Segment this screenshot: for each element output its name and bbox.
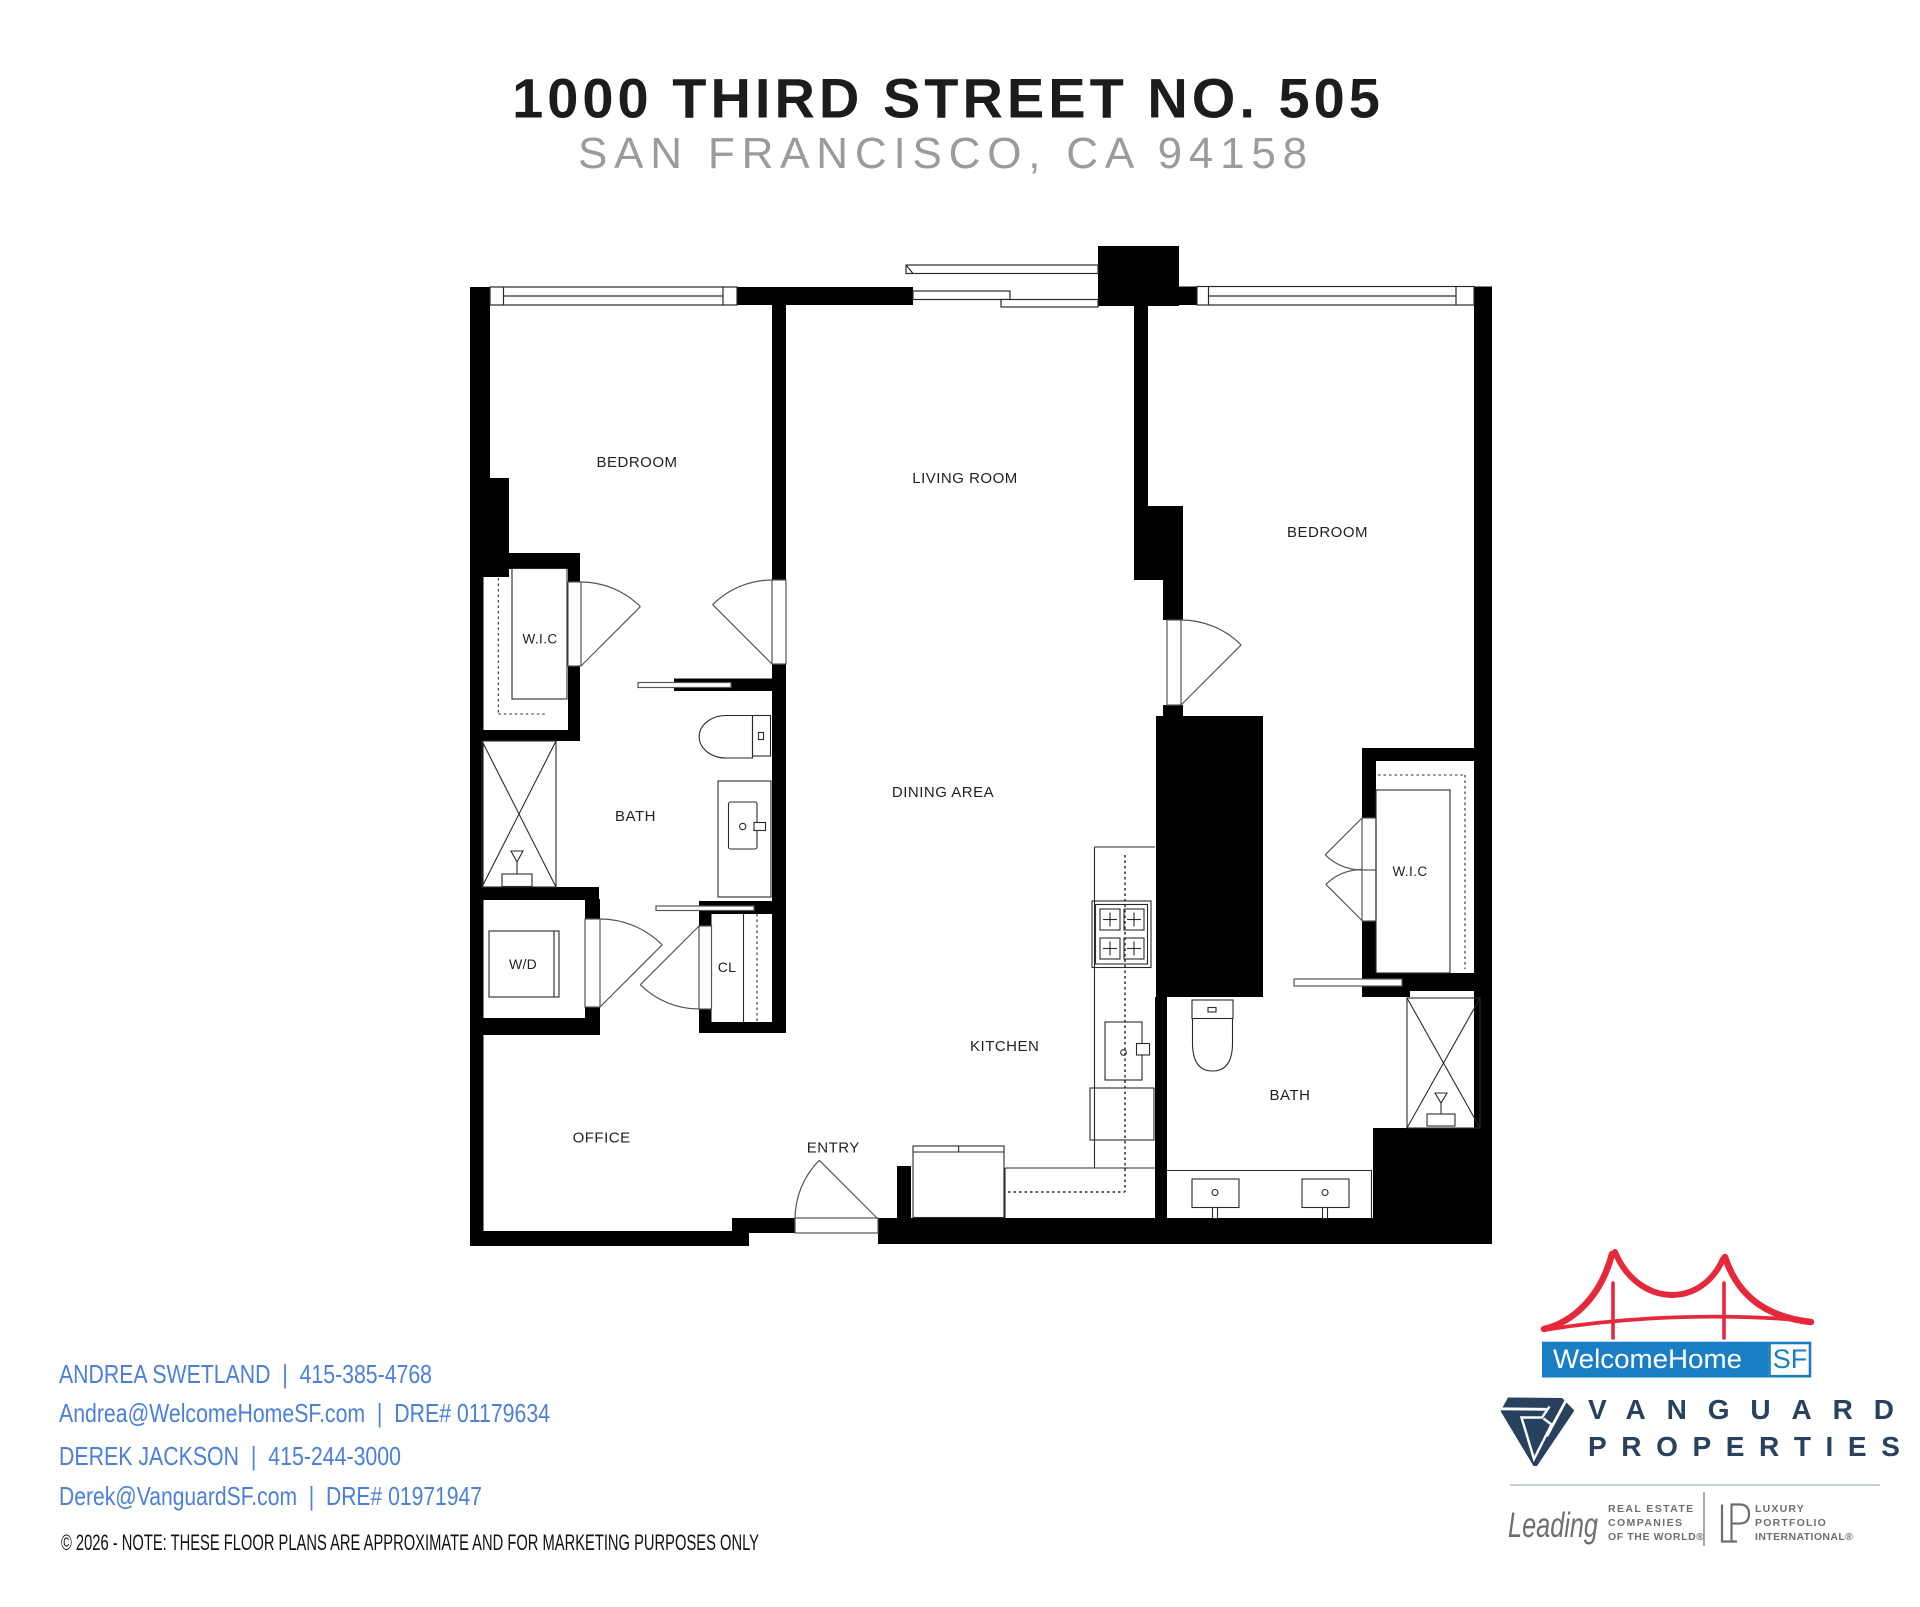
svg-text:1000 THIRD STREET NO. 505: 1000 THIRD STREET NO. 505 xyxy=(512,67,1384,130)
svg-text:W.I.C: W.I.C xyxy=(523,632,558,647)
svg-text:OFFICE: OFFICE xyxy=(573,1130,631,1147)
svg-text:CL: CL xyxy=(718,959,737,975)
svg-text:ENTRY: ENTRY xyxy=(807,1140,860,1157)
svg-text:Andrea@WelcomeHomeSF.com | D: Andrea@WelcomeHomeSF.com | DRE# 01179634 xyxy=(59,1398,550,1428)
svg-text:OF THE WORLD®: OF THE WORLD® xyxy=(1608,1531,1705,1543)
svg-text:DINING AREA: DINING AREA xyxy=(892,784,994,801)
svg-text:W.I.C: W.I.C xyxy=(1393,864,1428,879)
svg-text:Derek@VanguardSF.com | DRE#: Derek@VanguardSF.com | DRE# 01971947 xyxy=(59,1481,482,1511)
svg-text:PORTFOLIO: PORTFOLIO xyxy=(1755,1517,1827,1529)
svg-text:INTERNATIONAL®: INTERNATIONAL® xyxy=(1755,1531,1853,1543)
svg-text:ANDREA SWETLAND | 415-385-47: ANDREA SWETLAND | 415-385-4768 xyxy=(59,1359,432,1389)
svg-text:LUXURY: LUXURY xyxy=(1755,1503,1805,1515)
svg-text:SAN FRANCISCO, CA 94158: SAN FRANCISCO, CA 94158 xyxy=(578,129,1314,178)
svg-text:W/D: W/D xyxy=(509,956,537,972)
svg-text:KITCHEN: KITCHEN xyxy=(970,1038,1039,1055)
svg-text:Leading: Leading xyxy=(1508,1506,1598,1545)
svg-text:LIVING ROOM: LIVING ROOM xyxy=(912,470,1018,487)
svg-text:BEDROOM: BEDROOM xyxy=(1287,524,1368,541)
svg-text:SF: SF xyxy=(1773,1344,1808,1374)
svg-text:BEDROOM: BEDROOM xyxy=(596,454,677,471)
svg-text:BATH: BATH xyxy=(1270,1087,1311,1104)
svg-text:WelcomeHome: WelcomeHome xyxy=(1553,1344,1742,1374)
svg-text:REAL ESTATE: REAL ESTATE xyxy=(1608,1503,1695,1515)
svg-text:DEREK JACKSON | 415-244-3000: DEREK JACKSON | 415-244-3000 xyxy=(59,1441,401,1471)
svg-text:© 2026 - NOTE: THESE FLOOR PLA: © 2026 - NOTE: THESE FLOOR PLANS ARE APP… xyxy=(61,1530,759,1555)
svg-text:COMPANIES: COMPANIES xyxy=(1608,1517,1683,1529)
svg-text:VANGUARD: VANGUARD xyxy=(1588,1394,1915,1425)
svg-text:PROPERTIES: PROPERTIES xyxy=(1588,1431,1914,1462)
svg-text:BATH: BATH xyxy=(615,808,656,825)
